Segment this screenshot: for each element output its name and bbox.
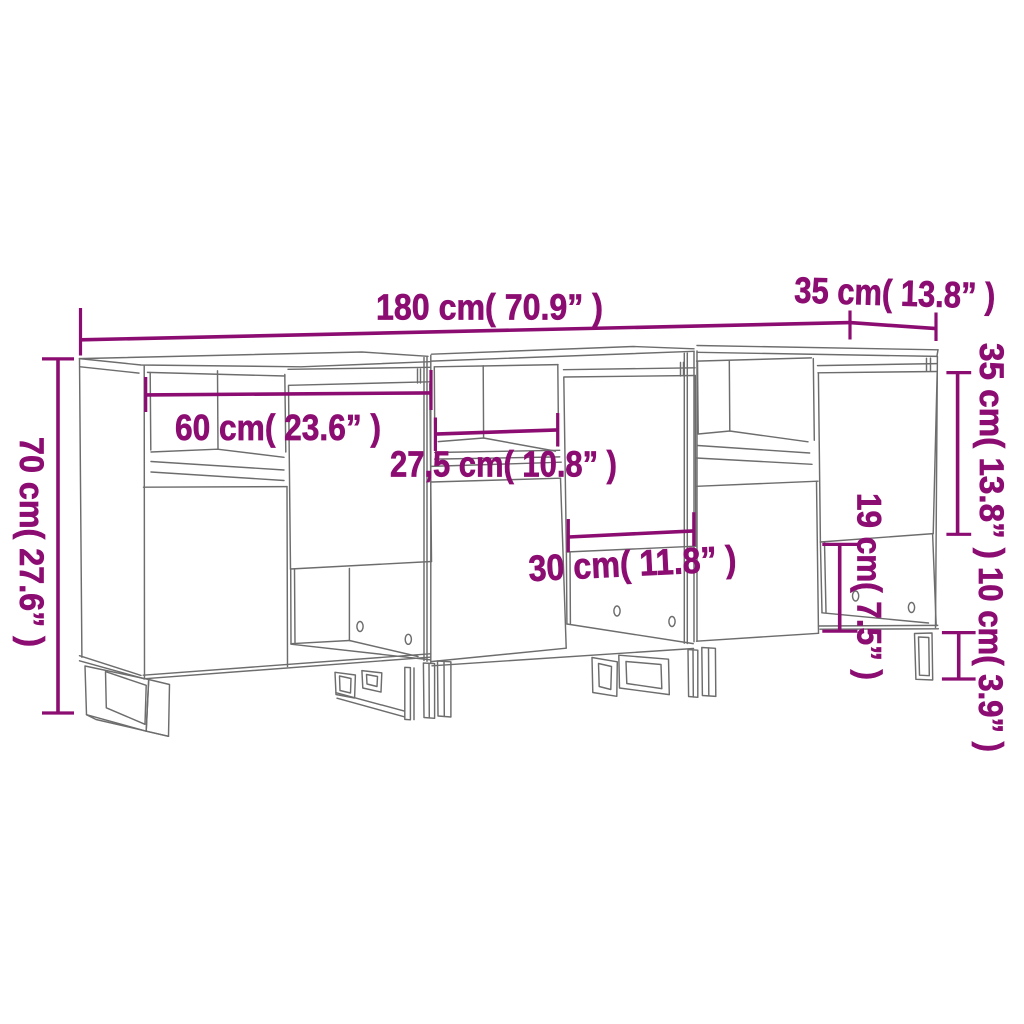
svg-text:19 cm( 7.5” ): 19 cm( 7.5” ) [850,493,888,680]
svg-text:60 cm( 23.6” ): 60 cm( 23.6” ) [175,407,381,448]
svg-text:35 cm( 13.8” ): 35 cm( 13.8” ) [972,343,1010,559]
svg-text:10 cm( 3.9” ): 10 cm( 3.9” ) [971,567,1009,752]
svg-text:70 cm( 27.6” ): 70 cm( 27.6” ) [12,437,50,647]
svg-text:27,5 cm( 10.8” ): 27,5 cm( 10.8” ) [390,443,617,484]
svg-text:180 cm( 70.9” ): 180 cm( 70.9” ) [376,287,603,328]
svg-text:35 cm( 13.8” ): 35 cm( 13.8” ) [794,270,996,317]
